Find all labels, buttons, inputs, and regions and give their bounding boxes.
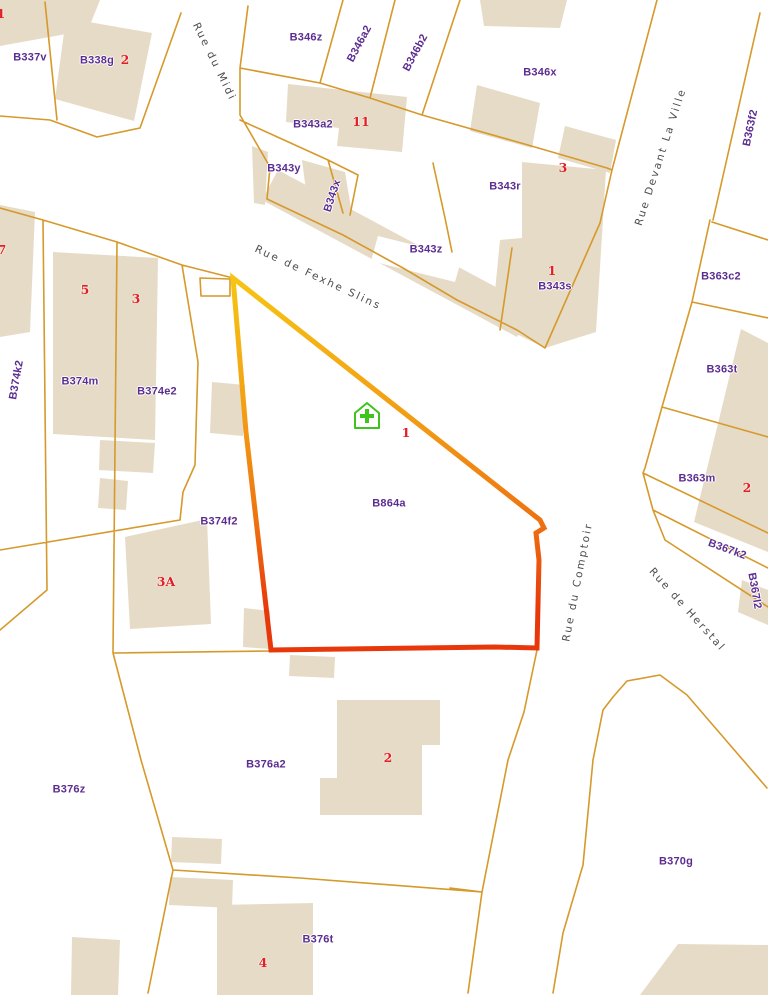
house-number-label: 1 xyxy=(0,8,5,21)
street-name-label: Rue du Midi xyxy=(190,21,237,103)
parcel-label[interactable]: B338g xyxy=(80,56,114,67)
house-number-label: 3A xyxy=(157,576,175,589)
parcel-label[interactable]: B346b2 xyxy=(402,33,431,74)
parcel-label[interactable]: B337v xyxy=(13,53,46,64)
cadastral-map[interactable]: B337vB338gB346zB346a2B346b2B346xB343a2B3… xyxy=(0,0,768,995)
house-number-label: 1 xyxy=(548,265,557,278)
street-name-label: Rue de Herstal xyxy=(647,566,727,653)
parcel-label[interactable]: B376t xyxy=(303,935,334,946)
parcel-label[interactable]: B374e2 xyxy=(137,387,177,398)
parcel-label[interactable]: B376z xyxy=(53,785,86,796)
house-number-label: 1 xyxy=(402,427,411,440)
parcel-label[interactable]: B374k2 xyxy=(8,359,26,400)
house-number-label: 2 xyxy=(121,54,130,67)
parcel-label[interactable]: B346x xyxy=(523,68,556,79)
house-number-label: 7 xyxy=(0,244,6,257)
house-number-label: 2 xyxy=(743,482,752,495)
parcel-label[interactable]: B370g xyxy=(659,857,693,868)
parcel-label[interactable]: B363m xyxy=(678,474,715,485)
parcel-label[interactable]: B367k2 xyxy=(706,538,747,562)
parcel-label[interactable]: B363t xyxy=(707,365,738,376)
house-number-label: 4 xyxy=(259,957,268,970)
street-name-label: Rue de Fexhe Slins xyxy=(253,244,383,312)
parcel-label[interactable]: B376a2 xyxy=(246,760,286,771)
parcel-label[interactable]: B374m xyxy=(61,377,98,388)
parcel-label[interactable]: B343r xyxy=(489,182,521,193)
parcel-label[interactable]: B367l2 xyxy=(745,572,762,610)
street-name-label: Rue Devant La Ville xyxy=(634,87,689,227)
parcel-label[interactable]: B346z xyxy=(290,33,323,44)
house-number-label: 11 xyxy=(352,116,369,129)
house-number-label: 2 xyxy=(384,752,393,765)
house-number-label: 5 xyxy=(81,284,90,297)
parcel-label[interactable]: B346a2 xyxy=(346,24,374,64)
parcel-label[interactable]: B343y xyxy=(267,164,300,175)
house-number-label: 3 xyxy=(132,293,141,306)
street-name-label: Rue du Comptoir xyxy=(561,521,594,642)
parcel-label[interactable]: B374f2 xyxy=(200,517,237,528)
parcel-label[interactable]: B363c2 xyxy=(701,272,741,283)
parcel-label[interactable]: B864a xyxy=(372,499,405,510)
parcel-label[interactable]: B343a2 xyxy=(293,120,333,131)
parcel-label[interactable]: B363f2 xyxy=(742,109,761,148)
parcel-label[interactable]: B343x xyxy=(323,178,344,213)
map-labels: B337vB338gB346zB346a2B346b2B346xB343a2B3… xyxy=(0,0,768,995)
parcel-label[interactable]: B343z xyxy=(410,245,443,256)
house-number-label: 3 xyxy=(559,162,568,175)
parcel-label[interactable]: B343s xyxy=(538,282,571,293)
